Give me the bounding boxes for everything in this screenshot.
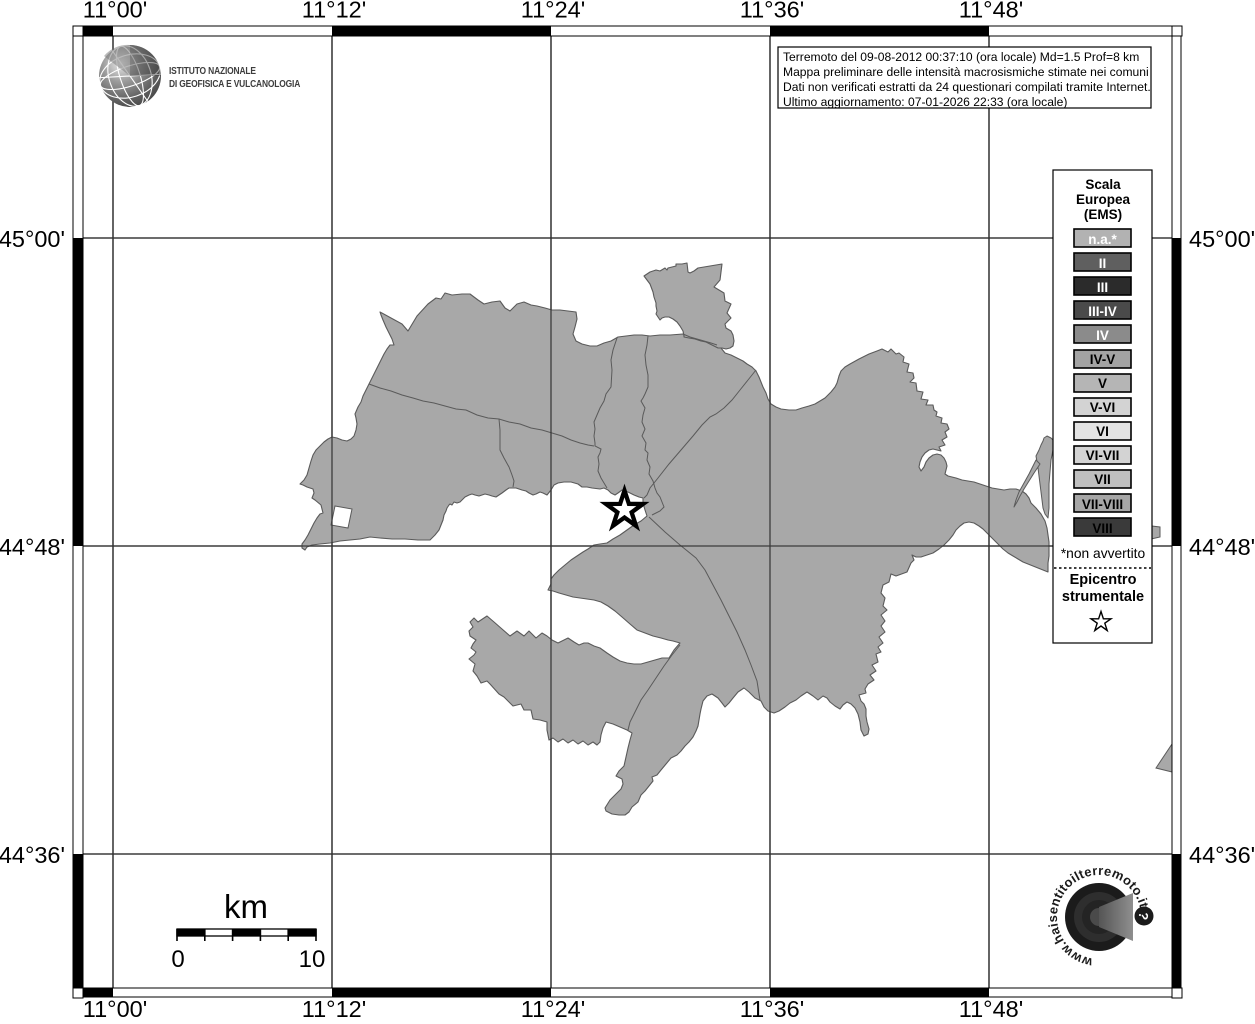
svg-text:VIII: VIII	[1092, 521, 1112, 536]
svg-text:V-VI: V-VI	[1090, 400, 1116, 415]
svg-text:11°48': 11°48'	[959, 996, 1023, 1022]
svg-text:11°36': 11°36'	[740, 996, 804, 1022]
svg-text:0: 0	[171, 946, 184, 973]
svg-text:km: km	[224, 888, 268, 925]
svg-text:VII: VII	[1094, 472, 1111, 487]
svg-text:VII-VIII: VII-VIII	[1082, 497, 1123, 512]
svg-text:11°12': 11°12'	[302, 0, 366, 23]
svg-text:45°00': 45°00'	[0, 226, 65, 252]
svg-text:10: 10	[299, 946, 326, 973]
svg-text:VI-VII: VI-VII	[1086, 448, 1120, 463]
svg-text:Ultimo aggiornamento: 07-01-20: Ultimo aggiornamento: 07-01-2026 22:33 (…	[783, 95, 1067, 109]
svg-text:IV-V: IV-V	[1090, 352, 1116, 367]
svg-text:DI GEOFISICA E VULCANOLOGIA: DI GEOFISICA E VULCANOLOGIA	[169, 77, 301, 89]
svg-text:11°36': 11°36'	[740, 0, 804, 23]
svg-text:Epicentro: Epicentro	[1070, 572, 1137, 588]
svg-text:11°24': 11°24'	[521, 996, 585, 1022]
svg-text:45°00': 45°00'	[1189, 226, 1255, 252]
svg-text:n.a.*: n.a.*	[1088, 232, 1117, 247]
svg-text:IV: IV	[1096, 328, 1109, 343]
svg-text:11°48': 11°48'	[959, 0, 1023, 23]
svg-text:11°00': 11°00'	[83, 996, 147, 1022]
svg-text:11°24': 11°24'	[521, 0, 585, 23]
svg-text:Terremoto del 09-08-2012 00:37: Terremoto del 09-08-2012 00:37:10 (ora l…	[783, 50, 1139, 64]
svg-text:III-IV: III-IV	[1088, 304, 1117, 319]
svg-text:Mappa preliminare delle intens: Mappa preliminare delle intensità macros…	[783, 65, 1149, 79]
svg-text:(EMS): (EMS)	[1084, 207, 1122, 222]
svg-text:strumentale: strumentale	[1062, 589, 1144, 605]
svg-text:Scala: Scala	[1085, 177, 1121, 192]
svg-text:III: III	[1097, 280, 1108, 295]
svg-text:II: II	[1099, 256, 1107, 271]
svg-text:44°48': 44°48'	[1189, 534, 1255, 560]
svg-text:44°36': 44°36'	[0, 842, 65, 868]
svg-text:11°00': 11°00'	[83, 0, 147, 23]
svg-text:Europea: Europea	[1076, 192, 1131, 207]
svg-text:Dati non verificati estratti d: Dati non verificati estratti da 24 quest…	[783, 80, 1151, 94]
svg-text:44°48': 44°48'	[0, 534, 65, 560]
svg-text:44°36': 44°36'	[1189, 842, 1255, 868]
svg-text:*non avvertito: *non avvertito	[1061, 546, 1146, 561]
svg-text:V: V	[1098, 376, 1107, 391]
svg-text:11°12': 11°12'	[302, 996, 366, 1022]
svg-text:VI: VI	[1096, 424, 1109, 439]
svg-text:ISTITUTO NAZIONALE: ISTITUTO NAZIONALE	[169, 64, 256, 76]
